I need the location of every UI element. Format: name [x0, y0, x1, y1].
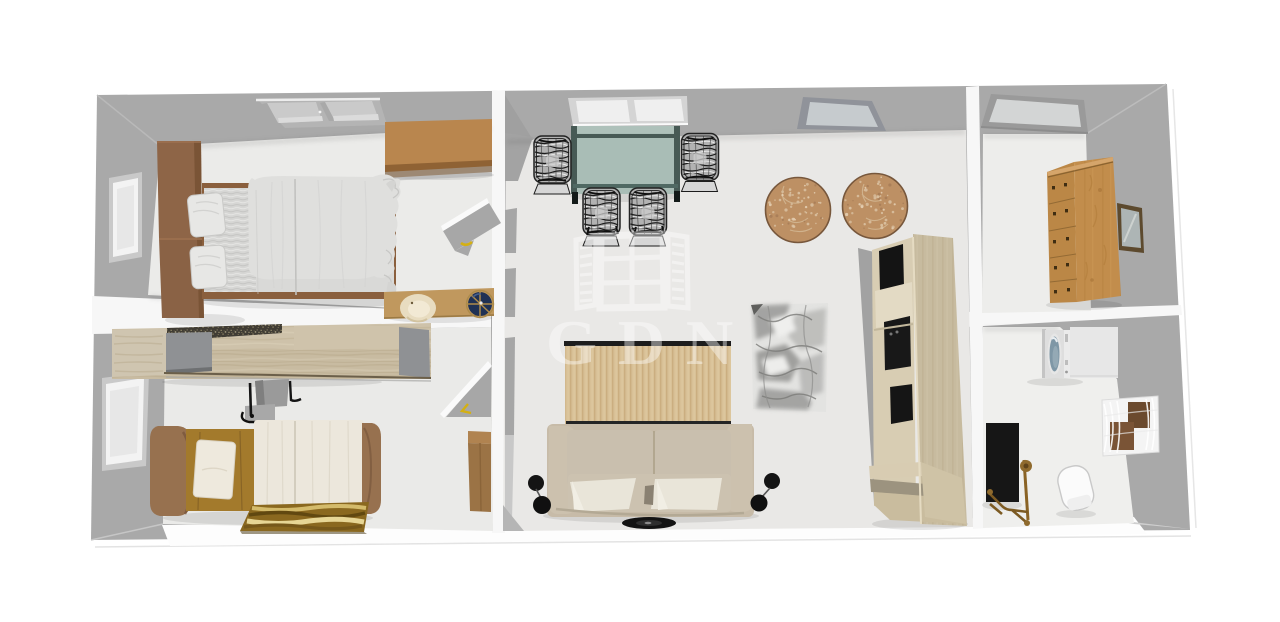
svg-text:GDN: GDN: [546, 308, 754, 378]
